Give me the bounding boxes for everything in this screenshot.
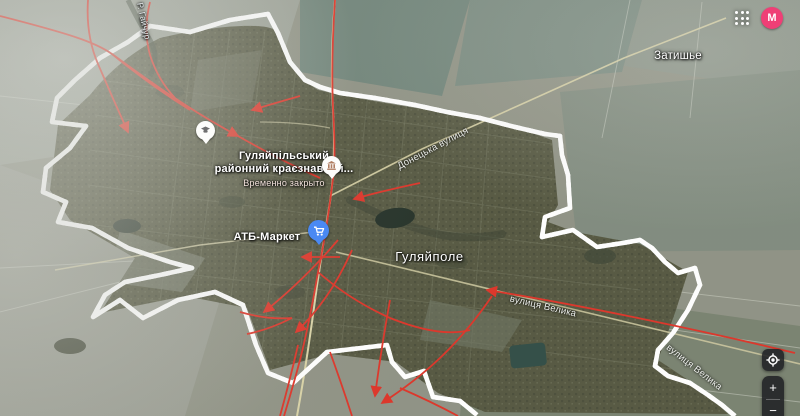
shopping-cart-icon <box>313 225 325 237</box>
map-canvas[interactable] <box>0 0 800 416</box>
avatar-initial: M <box>767 12 776 24</box>
grid-dot-icon <box>746 22 749 25</box>
poi-pin-school[interactable] <box>196 121 215 140</box>
grid-dot-icon <box>746 11 749 14</box>
my-location-icon <box>766 353 780 367</box>
account-avatar[interactable]: M <box>761 7 783 29</box>
zoom-control: + − <box>762 376 784 416</box>
satellite-basemap <box>0 0 800 416</box>
zoom-in-button[interactable]: + <box>762 376 784 399</box>
school-icon <box>200 125 211 136</box>
grid-dot-icon <box>746 17 749 20</box>
poi-pin-museum[interactable] <box>322 156 341 175</box>
my-location-button[interactable] <box>762 349 784 371</box>
poi-pin-atb-store[interactable] <box>308 220 329 241</box>
grid-dot-icon <box>741 11 744 14</box>
museum-icon <box>326 160 337 171</box>
grid-dot-icon <box>735 17 738 20</box>
zoom-out-button[interactable]: − <box>762 400 784 416</box>
grid-dot-icon <box>735 11 738 14</box>
grid-dot-icon <box>741 22 744 25</box>
grid-dot-icon <box>735 22 738 25</box>
apps-grid-menu-button[interactable] <box>735 11 750 26</box>
map-app-window: Затишье Гуляйполе Р. Гайчур Гуляйпільськ… <box>0 0 800 416</box>
grid-dot-icon <box>741 17 744 20</box>
